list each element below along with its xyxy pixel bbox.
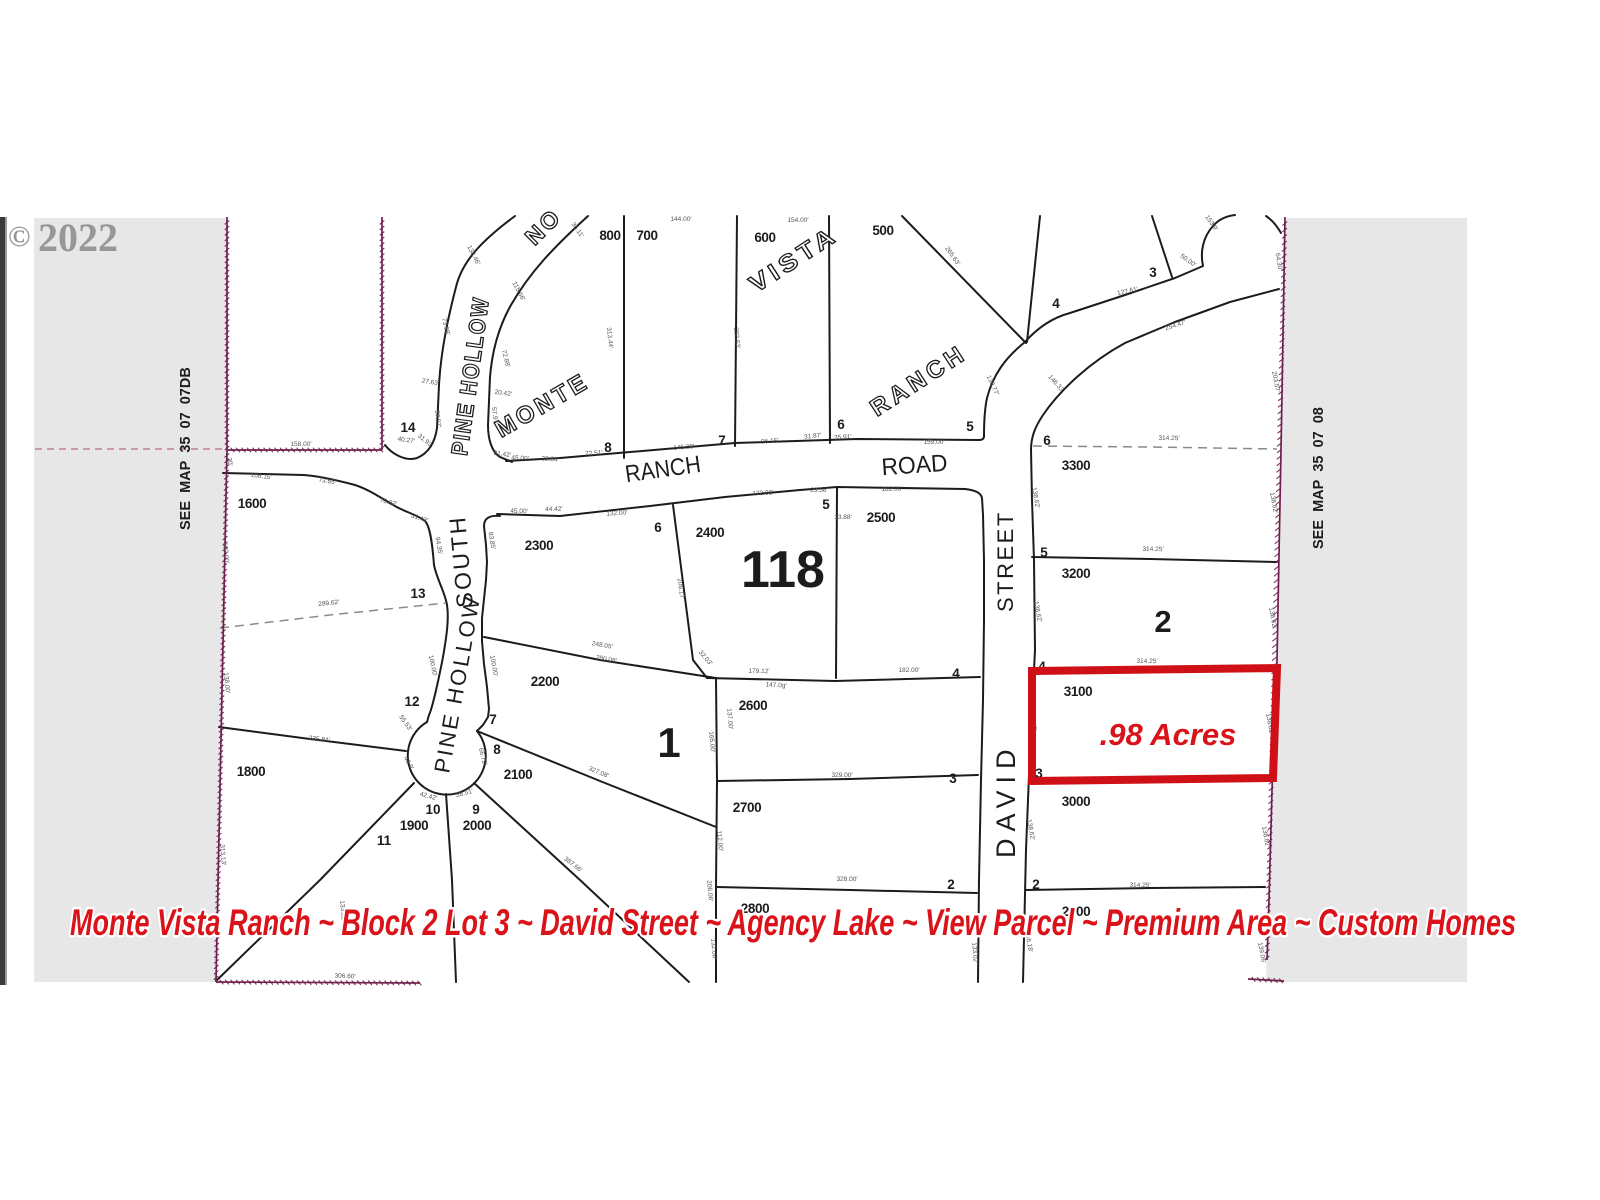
svg-text:2000: 2000 (463, 818, 491, 833)
svg-text:5: 5 (822, 497, 830, 512)
svg-text:45.00′: 45.00′ (510, 508, 528, 516)
svg-text:11: 11 (377, 833, 392, 848)
svg-text:5: 5 (966, 419, 974, 434)
svg-text:8: 8 (493, 742, 501, 757)
svg-text:118: 118 (741, 541, 825, 599)
svg-text:2100: 2100 (504, 767, 532, 782)
svg-text:3: 3 (1149, 265, 1157, 280)
svg-text:14: 14 (400, 420, 416, 435)
svg-text:DAVID: DAVID (991, 742, 1021, 858)
svg-text:SEE MAP 35 07 07DB: SEE MAP 35 07 07DB (178, 367, 194, 530)
svg-text:1600: 1600 (238, 496, 266, 511)
svg-text:Monte Vista Ranch ~ Block 2 Lo: Monte Vista Ranch ~ Block 2 Lot 3 ~ Davi… (70, 902, 1516, 943)
svg-text:32.84′: 32.84′ (541, 455, 560, 463)
svg-text:328.00′: 328.00′ (836, 876, 858, 883)
svg-text:SEE MAP 35 07 08: SEE MAP 35 07 08 (1311, 407, 1327, 549)
svg-text:1900: 1900 (400, 818, 428, 833)
svg-text:72.51′: 72.51′ (585, 449, 604, 457)
svg-text:23.56′: 23.56′ (810, 487, 828, 494)
svg-text:144.00′: 144.00′ (670, 216, 692, 223)
svg-text:6: 6 (654, 520, 662, 535)
svg-text:7: 7 (718, 433, 726, 448)
svg-text:ROAD: ROAD (881, 450, 949, 482)
svg-text:2600: 2600 (739, 698, 767, 713)
svg-text:4: 4 (952, 666, 960, 681)
svg-text:13.88′: 13.88′ (834, 514, 852, 521)
svg-text:182.00′: 182.00′ (898, 667, 920, 674)
svg-text:600: 600 (754, 230, 775, 245)
svg-text:172.00′: 172.00′ (752, 489, 774, 497)
svg-text:1800: 1800 (237, 764, 265, 779)
svg-text:314.25′: 314.25′ (1136, 658, 1158, 665)
svg-text:2022: 2022 (38, 215, 118, 260)
svg-text:3100: 3100 (1064, 684, 1092, 699)
svg-text:©: © (8, 220, 30, 253)
svg-text:306.60′: 306.60′ (334, 973, 356, 981)
svg-text:8: 8 (604, 440, 612, 455)
svg-text:9: 9 (472, 802, 480, 817)
svg-text:STREET: STREET (993, 510, 1018, 612)
svg-text:2400: 2400 (696, 525, 724, 540)
svg-text:314.25′: 314.25′ (1158, 435, 1180, 442)
svg-text:159.00′: 159.00′ (923, 439, 945, 446)
svg-text:158.00′: 158.00′ (290, 441, 312, 448)
svg-text:3200: 3200 (1062, 566, 1090, 581)
svg-text:4: 4 (1052, 296, 1060, 311)
svg-text:35.91′: 35.91′ (834, 433, 853, 441)
svg-text:3300: 3300 (1062, 458, 1090, 473)
svg-text:500: 500 (872, 223, 893, 238)
svg-text:314.25′: 314.25′ (1142, 546, 1164, 553)
svg-text:12: 12 (404, 694, 419, 709)
svg-text:7: 7 (489, 712, 497, 727)
svg-text:179.12′: 179.12′ (748, 668, 770, 675)
svg-text:2200: 2200 (531, 674, 559, 689)
svg-text:2: 2 (1154, 604, 1171, 639)
svg-text:2: 2 (947, 877, 955, 892)
svg-text:700: 700 (636, 228, 657, 243)
svg-text:44.42′: 44.42′ (545, 506, 563, 514)
svg-text:6: 6 (1043, 433, 1051, 448)
svg-text:96.15′: 96.15′ (761, 437, 780, 445)
svg-text:10: 10 (425, 802, 440, 817)
svg-text:2300: 2300 (525, 538, 553, 553)
svg-text:6: 6 (837, 417, 845, 432)
svg-text:800: 800 (599, 228, 620, 243)
svg-text:147.0g′: 147.0g′ (765, 681, 787, 689)
svg-text:329.00′: 329.00′ (831, 772, 853, 779)
svg-text:154.00′: 154.00′ (787, 217, 809, 224)
svg-text:5: 5 (1040, 545, 1048, 560)
svg-text:3: 3 (949, 771, 957, 786)
svg-text:2700: 2700 (733, 800, 761, 815)
svg-text:.98 Acres: .98 Acres (1100, 717, 1237, 752)
svg-text:1: 1 (657, 719, 680, 766)
svg-text:2500: 2500 (867, 510, 895, 525)
svg-text:45.00′: 45.00′ (511, 454, 530, 462)
svg-text:3000: 3000 (1062, 794, 1090, 809)
svg-text:182.00′: 182.00′ (881, 486, 903, 493)
svg-text:13: 13 (410, 586, 426, 601)
svg-text:314.25′: 314.25′ (1129, 882, 1151, 889)
svg-text:2: 2 (1032, 877, 1040, 892)
